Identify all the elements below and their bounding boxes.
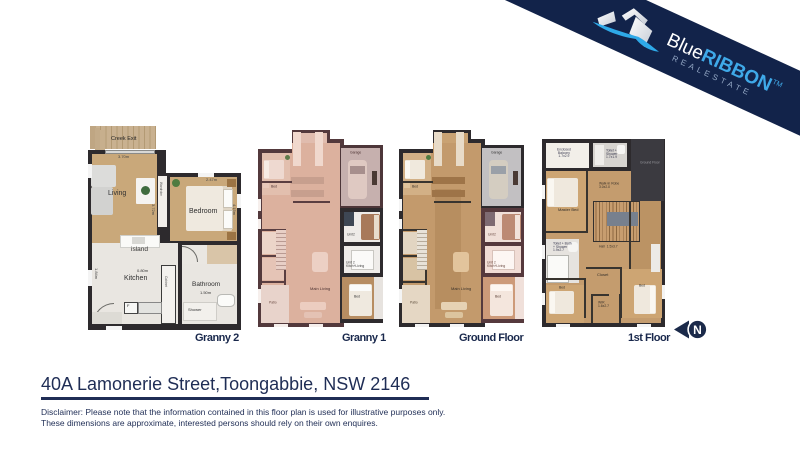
svg-text:N: N [693, 323, 702, 337]
